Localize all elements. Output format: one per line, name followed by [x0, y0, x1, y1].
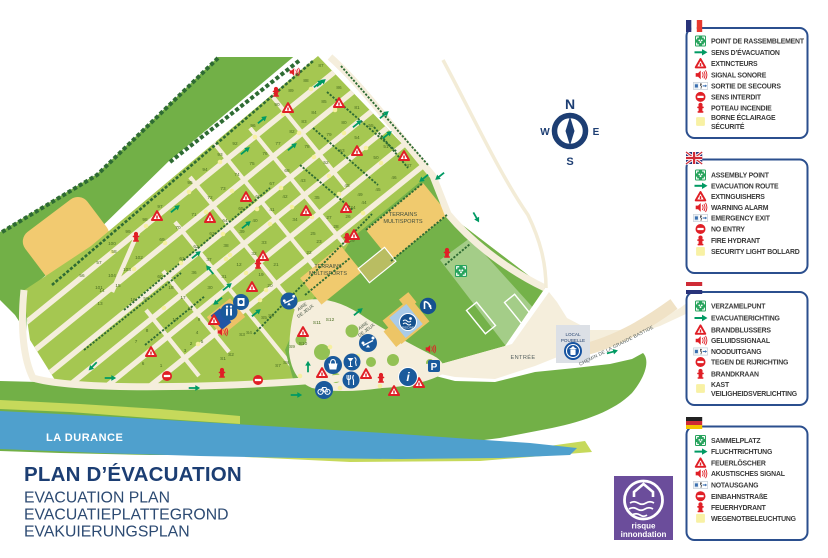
- svg-text:3: 3: [184, 348, 187, 353]
- svg-text:42: 42: [282, 194, 288, 199]
- svg-text:84: 84: [311, 110, 317, 115]
- svg-text:POTEAU INCENDIE: POTEAU INCENDIE: [711, 106, 772, 113]
- svg-text:34: 34: [292, 217, 298, 222]
- svg-text:LA DURANCE: LA DURANCE: [46, 432, 123, 444]
- svg-text:TEGEN DE RIJRICHTING: TEGEN DE RIJRICHTING: [711, 360, 788, 367]
- svg-text:59: 59: [143, 296, 149, 301]
- svg-text:TERRAINS: TERRAINS: [389, 212, 418, 218]
- svg-text:56: 56: [79, 273, 85, 278]
- svg-text:EVACUATION PLAN: EVACUATION PLAN: [24, 490, 170, 507]
- svg-text:NOTAUSGANG: NOTAUSGANG: [711, 483, 758, 490]
- svg-text:44: 44: [361, 200, 367, 205]
- svg-text:79: 79: [326, 132, 332, 137]
- svg-text:87: 87: [318, 63, 324, 68]
- svg-text:67: 67: [269, 181, 275, 186]
- svg-text:49: 49: [357, 192, 363, 197]
- svg-text:104: 104: [108, 273, 116, 278]
- svg-text:58: 58: [111, 249, 117, 254]
- svg-text:74: 74: [234, 172, 240, 177]
- svg-text:20: 20: [267, 283, 273, 288]
- svg-text:46: 46: [391, 175, 397, 180]
- svg-text:90: 90: [274, 102, 280, 107]
- svg-text:99: 99: [125, 229, 131, 234]
- svg-text:13: 13: [97, 301, 103, 306]
- svg-text:70: 70: [175, 225, 181, 230]
- svg-text:92: 92: [232, 141, 238, 146]
- svg-text:26: 26: [345, 214, 351, 219]
- svg-text:60: 60: [157, 274, 163, 279]
- svg-text:32: 32: [251, 251, 257, 256]
- svg-text:S6: S6: [268, 313, 274, 319]
- svg-text:39: 39: [239, 229, 245, 234]
- svg-text:NO ENTRY: NO ENTRY: [711, 227, 745, 234]
- svg-text:18: 18: [168, 285, 174, 290]
- svg-text:76: 76: [262, 151, 268, 156]
- svg-text:S1: S1: [220, 356, 226, 362]
- svg-text:88: 88: [303, 78, 309, 83]
- svg-text:33: 33: [261, 240, 267, 245]
- svg-text:83: 83: [301, 119, 307, 124]
- svg-text:7: 7: [135, 339, 138, 344]
- svg-text:KAST: KAST: [711, 382, 730, 389]
- svg-text:1: 1: [160, 363, 163, 368]
- svg-text:61: 61: [179, 256, 185, 261]
- svg-text:25: 25: [310, 231, 316, 236]
- svg-text:12: 12: [236, 262, 242, 267]
- svg-text:GELUIDSSIGNAAL: GELUIDSSIGNAAL: [711, 338, 770, 345]
- svg-text:FEUERLÖSCHER: FEUERLÖSCHER: [711, 459, 766, 468]
- svg-text:78: 78: [304, 144, 310, 149]
- svg-text:EVAKUIERUNGSPLAN: EVAKUIERUNGSPLAN: [24, 524, 190, 541]
- svg-text:52: 52: [323, 160, 329, 165]
- svg-text:EMERGENCY EXIT: EMERGENCY EXIT: [711, 216, 771, 223]
- svg-text:PLAN D’ÉVACUATION: PLAN D’ÉVACUATION: [24, 463, 242, 486]
- svg-text:S2: S2: [228, 352, 234, 358]
- svg-text:FEUERHYDRANT: FEUERHYDRANT: [711, 505, 767, 512]
- svg-text:55: 55: [368, 123, 374, 128]
- svg-text:98: 98: [142, 217, 148, 222]
- svg-text:FLUCHTRICHTUNG: FLUCHTRICHTUNG: [711, 449, 772, 456]
- svg-text:15: 15: [115, 283, 121, 288]
- svg-text:MULTISPORTS: MULTISPORTS: [383, 219, 423, 225]
- svg-text:86: 86: [336, 85, 342, 90]
- svg-text:SECURITY LIGHT BOLLARD: SECURITY LIGHT BOLLARD: [711, 249, 800, 256]
- svg-text:S7: S7: [275, 363, 281, 369]
- svg-text:31: 31: [221, 274, 227, 279]
- svg-text:85: 85: [321, 99, 327, 104]
- svg-text:23: 23: [316, 239, 322, 244]
- svg-text:51: 51: [383, 144, 389, 149]
- svg-text:75: 75: [249, 161, 255, 166]
- svg-text:E: E: [593, 127, 600, 138]
- svg-text:EXTINGUISHERS: EXTINGUISHERS: [711, 194, 765, 201]
- svg-text:50: 50: [373, 155, 379, 160]
- svg-text:103: 103: [123, 267, 131, 272]
- svg-text:WEGENOTBELEUCHTUNG: WEGENOTBELEUCHTUNG: [711, 516, 796, 523]
- svg-text:62: 62: [193, 244, 199, 249]
- svg-text:19: 19: [258, 272, 264, 277]
- svg-text:45: 45: [375, 187, 381, 192]
- svg-text:65: 65: [238, 206, 244, 211]
- svg-text:27: 27: [326, 215, 332, 220]
- svg-text:24: 24: [350, 205, 356, 210]
- svg-text:54: 54: [354, 135, 360, 140]
- svg-text:21: 21: [273, 262, 279, 267]
- svg-text:38: 38: [223, 243, 229, 248]
- svg-text:89: 89: [288, 88, 294, 93]
- svg-text:S8: S8: [283, 360, 289, 366]
- svg-text:5: 5: [201, 339, 204, 344]
- svg-text:22: 22: [306, 250, 312, 255]
- svg-text:innondation: innondation: [621, 530, 667, 539]
- svg-text:BORNE ÉCLAIRAGE: BORNE ÉCLAIRAGE: [711, 113, 776, 122]
- svg-text:9: 9: [198, 317, 201, 322]
- svg-text:SÉCURITÉ: SÉCURITÉ: [711, 122, 745, 131]
- svg-text:P: P: [431, 362, 438, 373]
- svg-text:S9: S9: [289, 344, 295, 350]
- svg-text:63: 63: [209, 231, 215, 236]
- svg-text:10: 10: [172, 317, 178, 322]
- svg-text:S11: S11: [313, 320, 322, 326]
- svg-text:N: N: [565, 96, 575, 112]
- svg-text:S5: S5: [261, 315, 267, 321]
- svg-text:SORTIE DE SECOURS: SORTIE DE SECOURS: [711, 84, 781, 91]
- svg-text:73: 73: [220, 186, 226, 191]
- svg-text:82: 82: [289, 129, 295, 134]
- svg-text:40: 40: [252, 218, 258, 223]
- svg-text:68: 68: [284, 168, 290, 173]
- svg-text:77: 77: [275, 141, 281, 146]
- svg-text:EINBAHNSTRAßE: EINBAHNSTRAßE: [711, 494, 768, 501]
- svg-text:ENTRÉE: ENTRÉE: [510, 354, 535, 361]
- svg-text:47: 47: [406, 163, 412, 168]
- svg-text:FIRE HYDRANT: FIRE HYDRANT: [711, 238, 761, 245]
- svg-text:SIGNAL SONORE: SIGNAL SONORE: [711, 73, 767, 80]
- svg-text:NOODUITGANG: NOODUITGANG: [711, 349, 761, 356]
- svg-text:VERZAMELPUNT: VERZAMELPUNT: [711, 304, 766, 311]
- svg-text:66: 66: [255, 194, 261, 199]
- svg-text:PISCINE: PISCINE: [402, 326, 414, 330]
- svg-text:97: 97: [157, 204, 163, 209]
- svg-text:30: 30: [207, 285, 213, 290]
- svg-text:64: 64: [222, 218, 228, 223]
- svg-text:48: 48: [344, 183, 350, 188]
- svg-text:72: 72: [207, 195, 213, 200]
- svg-text:S: S: [566, 156, 573, 168]
- svg-text:81: 81: [354, 105, 360, 110]
- svg-text:POINT DE RASSEMBLEMENT: POINT DE RASSEMBLEMENT: [711, 39, 805, 46]
- svg-text:4: 4: [196, 330, 199, 335]
- svg-text:71: 71: [191, 212, 197, 217]
- svg-text:SAMMELPLATZ: SAMMELPLATZ: [711, 438, 761, 445]
- svg-text:35: 35: [314, 195, 320, 200]
- svg-text:ASSEMBLY POINT: ASSEMBLY POINT: [711, 173, 770, 180]
- svg-text:SENS D’ÉVACUATION: SENS D’ÉVACUATION: [711, 48, 780, 57]
- svg-text:6: 6: [142, 361, 145, 366]
- svg-text:41: 41: [269, 207, 275, 212]
- svg-text:VEILIGHEIDSVERLICHTING: VEILIGHEIDSVERLICHTING: [711, 391, 797, 398]
- svg-text:43: 43: [300, 178, 306, 183]
- svg-text:17: 17: [180, 295, 186, 300]
- svg-text:53: 53: [339, 148, 345, 153]
- svg-text:WARNING ALARM: WARNING ALARM: [711, 205, 769, 212]
- svg-text:LOCAL: LOCAL: [565, 332, 581, 337]
- svg-text:96: 96: [250, 123, 256, 128]
- svg-text:69: 69: [159, 237, 165, 242]
- svg-text:8: 8: [146, 328, 149, 333]
- svg-text:95: 95: [187, 180, 193, 185]
- svg-text:S12: S12: [326, 317, 335, 323]
- svg-text:BRANDKRAAN: BRANDKRAAN: [711, 372, 759, 379]
- svg-text:BRANDBLUSSERS: BRANDBLUSSERS: [711, 328, 771, 335]
- svg-text:AKUSTISCHES SIGNAL: AKUSTISCHES SIGNAL: [711, 471, 785, 478]
- svg-text:2: 2: [190, 341, 193, 346]
- svg-text:S4: S4: [246, 330, 252, 336]
- svg-text:EVACUATIEPLATTEGROND: EVACUATIEPLATTEGROND: [24, 507, 229, 524]
- svg-text:37: 37: [206, 257, 212, 262]
- svg-text:100: 100: [108, 241, 116, 246]
- svg-text:102: 102: [135, 255, 143, 260]
- svg-text:101: 101: [95, 285, 103, 290]
- svg-text:EVACUATIERICHTING: EVACUATIERICHTING: [711, 316, 780, 323]
- svg-text:93: 93: [217, 152, 223, 157]
- svg-text:EVACUATION ROUTE: EVACUATION ROUTE: [711, 183, 779, 190]
- svg-text:57: 57: [96, 260, 102, 265]
- svg-text:94: 94: [202, 167, 208, 172]
- svg-text:EXTINCTEURS: EXTINCTEURS: [711, 61, 758, 68]
- svg-text:16: 16: [130, 297, 136, 302]
- svg-text:11: 11: [188, 306, 193, 311]
- svg-text:S10: S10: [299, 341, 308, 347]
- svg-text:S3: S3: [239, 332, 245, 338]
- svg-text:36: 36: [191, 270, 197, 275]
- svg-text:W: W: [540, 127, 550, 138]
- svg-text:28: 28: [333, 224, 339, 229]
- svg-text:80: 80: [341, 120, 347, 125]
- svg-text:SENS INTERDIT: SENS INTERDIT: [711, 95, 762, 102]
